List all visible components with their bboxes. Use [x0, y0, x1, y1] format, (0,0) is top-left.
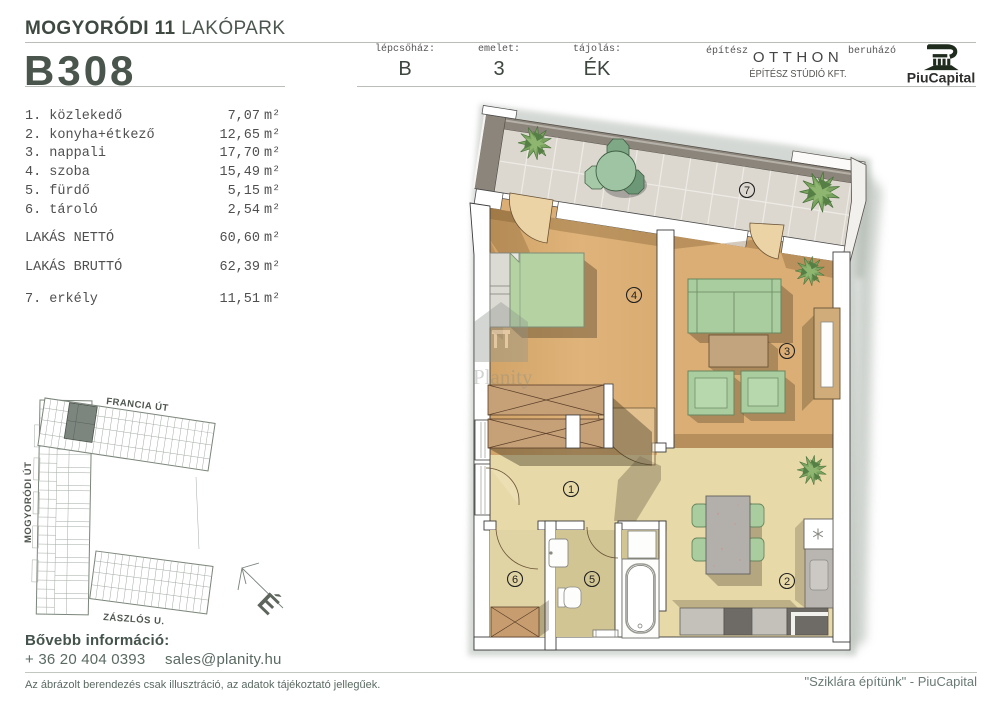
svg-text:2: 2: [784, 576, 790, 588]
svg-text:PiuCapital: PiuCapital: [907, 70, 975, 86]
svg-text:7: 7: [744, 185, 750, 197]
svg-text:3: 3: [784, 346, 790, 358]
svg-text:ZÁSZLÓS U.: ZÁSZLÓS U.: [103, 611, 165, 627]
svg-text:É: É: [252, 587, 285, 621]
svg-text:1: 1: [568, 484, 574, 496]
svg-text:6: 6: [512, 574, 518, 586]
svg-text:MOGYORÓDI ÚT: MOGYORÓDI ÚT: [22, 462, 34, 543]
svg-text:5: 5: [589, 574, 595, 586]
svg-text:4: 4: [631, 290, 637, 302]
svg-text:Planity: Planity: [473, 365, 533, 389]
